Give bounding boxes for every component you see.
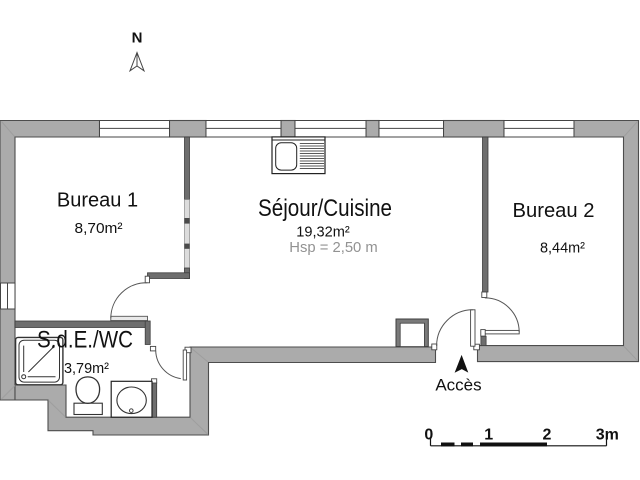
svg-text:0: 0 [424, 427, 433, 444]
svg-text:Accès: Accès [435, 376, 481, 395]
svg-text:Hsp = 2,50 m: Hsp = 2,50 m [289, 239, 378, 256]
svg-text:N: N [132, 30, 143, 47]
svg-text:8,70m²: 8,70m² [75, 220, 123, 237]
svg-text:Bureau 2: Bureau 2 [513, 200, 595, 222]
svg-text:S.d.E./WC: S.d.E./WC [37, 326, 133, 353]
svg-text:3m: 3m [596, 427, 619, 444]
svg-text:Séjour/Cuisine: Séjour/Cuisine [258, 195, 392, 222]
svg-text:3,79m²: 3,79m² [64, 360, 109, 377]
svg-text:Bureau 1: Bureau 1 [57, 189, 138, 211]
svg-text:8,44m²: 8,44m² [540, 239, 585, 256]
svg-text:1: 1 [484, 427, 493, 444]
svg-text:2: 2 [543, 427, 552, 444]
